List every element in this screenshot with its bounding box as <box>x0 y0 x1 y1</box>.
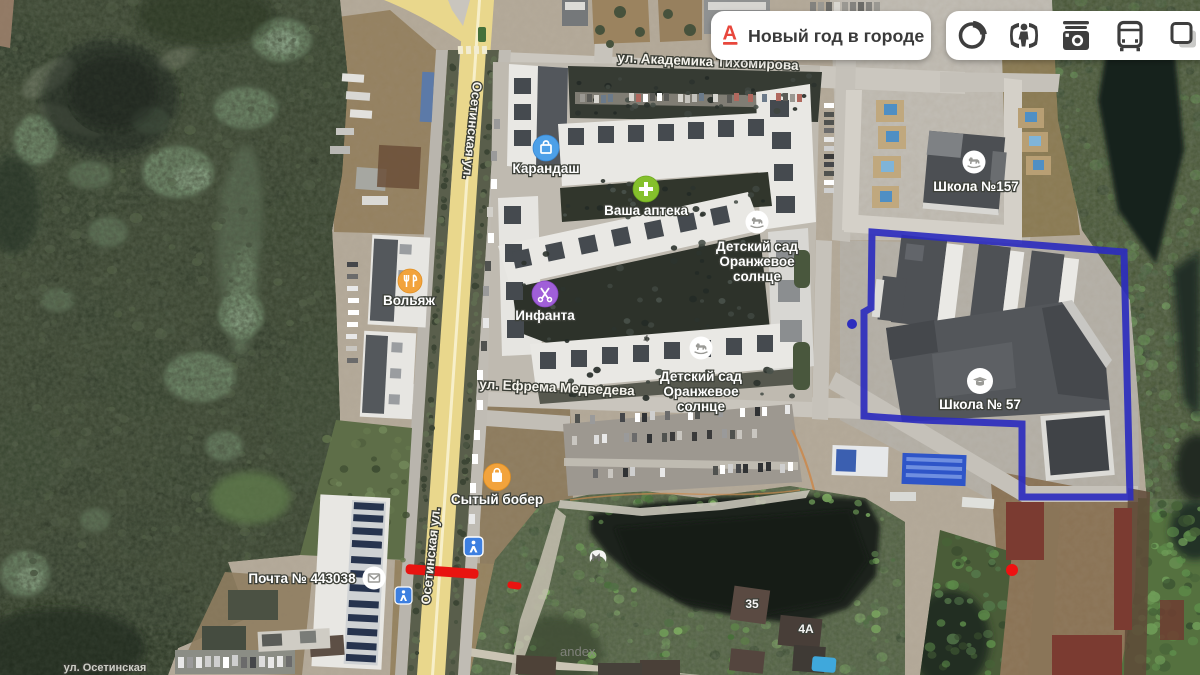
svg-text:Оранжевое: Оранжевое <box>719 254 795 269</box>
svg-text:Школа № 57: Школа № 57 <box>939 397 1021 412</box>
svg-text:4А: 4А <box>798 622 814 636</box>
svg-text:andex: andex <box>560 644 596 659</box>
svg-text:ул. Осетинская: ул. Осетинская <box>64 662 147 674</box>
svg-text:солнце: солнце <box>677 399 725 414</box>
svg-text:Инфанта: Инфанта <box>515 308 575 323</box>
svg-text:Детский сад: Детский сад <box>716 239 798 254</box>
svg-text:35: 35 <box>745 597 759 611</box>
svg-text:Новый год в городе: Новый год в городе <box>748 26 924 46</box>
svg-text:Почта № 443038: Почта № 443038 <box>248 571 356 586</box>
svg-text:Детский сад: Детский сад <box>660 369 742 384</box>
svg-text:А: А <box>723 23 737 45</box>
svg-text:Оранжевое: Оранжевое <box>663 384 739 399</box>
svg-text:4: 4 <box>643 334 649 345</box>
svg-text:Вольяж: Вольяж <box>383 293 435 308</box>
svg-text:Школа №157: Школа №157 <box>933 179 1018 194</box>
svg-text:солнце: солнце <box>733 269 781 284</box>
svg-text:Карандаш: Карандаш <box>512 161 579 176</box>
svg-text:Ваша аптека: Ваша аптека <box>604 203 688 218</box>
svg-text:Сытый бобер: Сытый бобер <box>451 492 543 507</box>
